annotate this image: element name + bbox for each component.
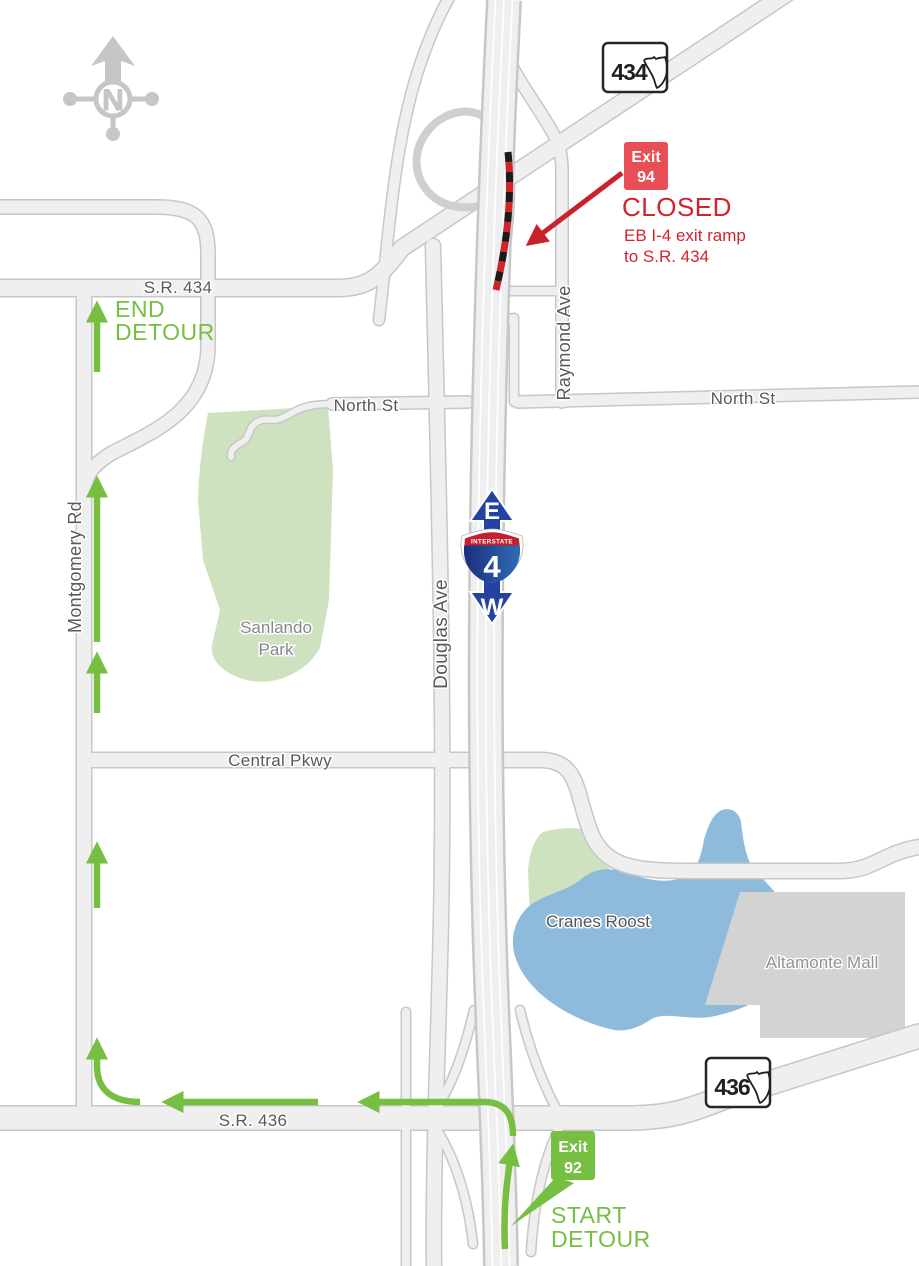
exit-94-badge-word: Exit — [631, 149, 661, 166]
interstate-number: 4 — [483, 549, 501, 584]
start-detour-label-1: START — [551, 1202, 627, 1228]
compass-rose: N — [63, 36, 159, 141]
sanlando-park-label-2: Park — [259, 640, 294, 659]
exit-92-badge-word: Exit — [558, 1139, 588, 1156]
dir-west-label: W — [481, 594, 504, 621]
sr434-shield: 434 — [603, 43, 667, 92]
north-arrow-icon — [91, 36, 135, 84]
sr434-label: S.R. 434 — [144, 278, 213, 297]
sanlando-park-label-1: Sanlando — [240, 618, 312, 637]
sr434-shield-number: 434 — [611, 59, 648, 85]
north-st-east-label: North St — [711, 389, 776, 408]
north-st-west-label: North St — [334, 396, 399, 415]
start-detour-label-2: DETOUR — [551, 1226, 651, 1252]
exit-94-badge-number: 94 — [637, 169, 655, 186]
end-detour-label-2: DETOUR — [115, 319, 215, 345]
exit-92-badge-number: 92 — [564, 1160, 582, 1177]
dir-east-label: E — [484, 498, 500, 525]
central-pkwy-label: Central Pkwy — [228, 751, 332, 770]
altamonte-mall-label: Altamonte Mall — [766, 953, 878, 972]
compass-n-label: N — [102, 84, 124, 117]
land-areas — [198, 406, 905, 1038]
sr436-shield: 436 — [706, 1058, 770, 1107]
detour-turn-north — [97, 1044, 140, 1102]
douglas-ave-label: Douglas Ave — [431, 579, 452, 689]
raymond-ave-label: Raymond Ave — [554, 285, 574, 400]
montgomery-rd-label: Montgomery Rd — [65, 501, 85, 633]
detour-map: N Exit 94 CLOSED EB I-4 exit ramp to S.R… — [0, 0, 919, 1266]
sr436-shield-number: 436 — [714, 1074, 750, 1100]
sr436-label: S.R. 436 — [219, 1111, 288, 1130]
interstate-band-label: INTERSTATE — [471, 539, 513, 546]
closed-detail-1: EB I-4 exit ramp — [624, 226, 746, 245]
roads — [0, 0, 919, 1266]
cranes-roost-label: Cranes Roost — [546, 912, 650, 931]
closed-label: CLOSED — [622, 192, 732, 222]
closed-detail-2: to S.R. 434 — [624, 247, 709, 266]
